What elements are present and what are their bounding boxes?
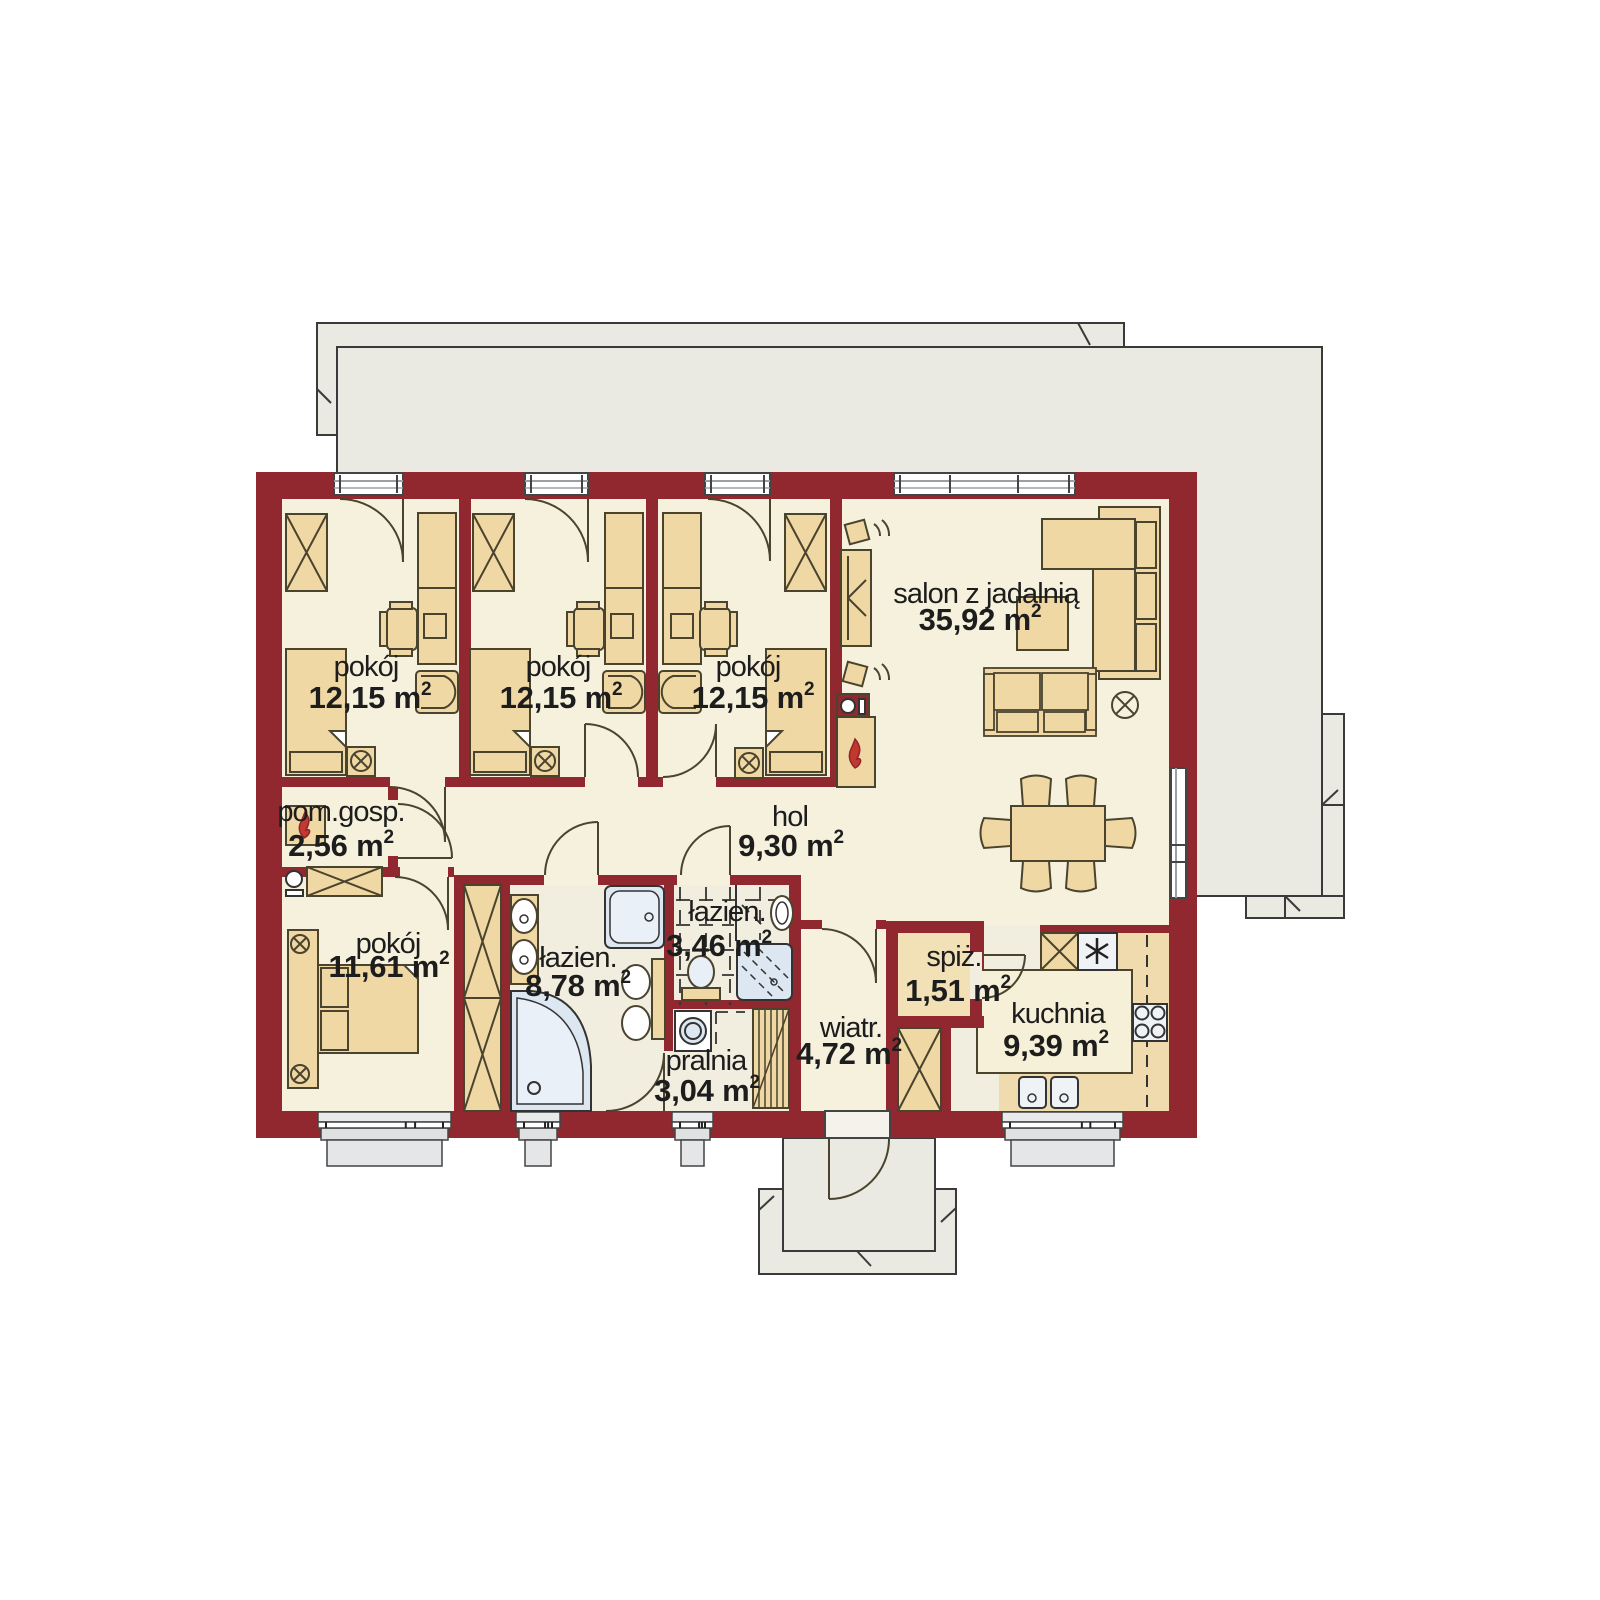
svg-text:kuchnia: kuchnia xyxy=(1011,998,1106,1030)
svg-text:12,15 m2: 12,15 m2 xyxy=(309,679,432,715)
svg-text:11,61 m2: 11,61 m2 xyxy=(328,948,449,984)
svg-text:pokój: pokój xyxy=(334,651,399,683)
svg-text:pokój: pokój xyxy=(716,651,781,683)
svg-text:łazien.: łazien. xyxy=(688,896,766,928)
svg-text:9,30 m2: 9,30 m2 xyxy=(738,827,844,863)
svg-text:8,78 m2: 8,78 m2 xyxy=(525,967,631,1003)
svg-text:3,46 m2: 3,46 m2 xyxy=(666,927,772,963)
svg-text:12,15 m2: 12,15 m2 xyxy=(692,679,815,715)
svg-text:4,72 m2: 4,72 m2 xyxy=(796,1035,902,1071)
svg-text:pokój: pokój xyxy=(526,651,591,683)
svg-text:2,56 m2: 2,56 m2 xyxy=(288,827,394,863)
svg-text:35,92 m2: 35,92 m2 xyxy=(919,601,1042,637)
svg-text:9,39 m2: 9,39 m2 xyxy=(1003,1027,1109,1063)
svg-text:spiż.: spiż. xyxy=(926,941,981,973)
svg-text:pom.gosp.: pom.gosp. xyxy=(277,796,404,828)
svg-text:12,15 m2: 12,15 m2 xyxy=(500,679,623,715)
svg-text:1,51 m2: 1,51 m2 xyxy=(905,972,1011,1008)
svg-text:3,04 m2: 3,04 m2 xyxy=(654,1072,760,1108)
